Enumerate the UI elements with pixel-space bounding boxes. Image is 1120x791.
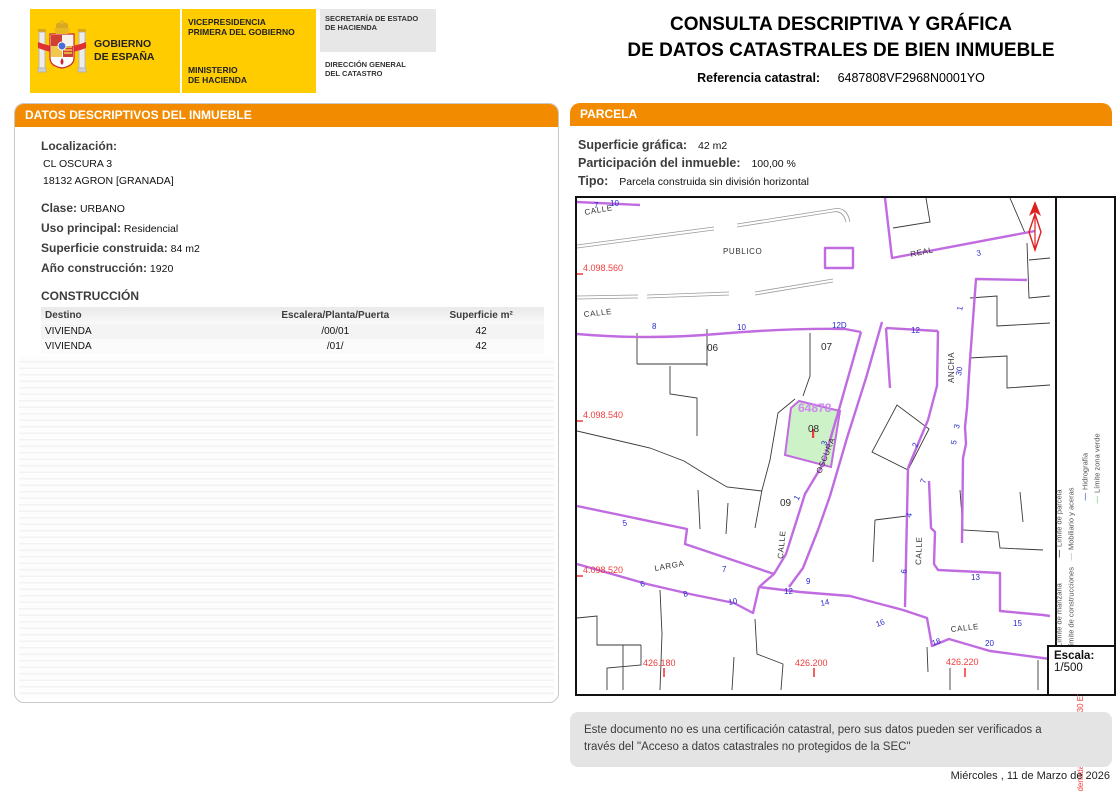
table-row: VIVIENDA/01/42 (41, 339, 544, 354)
disclaimer-box: Este documento no es una certificación c… (570, 712, 1112, 767)
field-label: Clase: (41, 201, 77, 215)
north-arrow-icon (1029, 201, 1041, 250)
legend-entry: —Límite zona verde (1094, 433, 1102, 503)
document-page: GOBIERNO DE ESPAÑA VICEPRESIDENCIA PRIME… (0, 0, 1120, 791)
house-label: 3 (976, 248, 982, 258)
table-column-header: Superficie m² (418, 307, 544, 324)
parcel-label: 08 (808, 424, 820, 435)
house-label: 8 (652, 322, 657, 331)
field-row: Clase: URBANO (41, 201, 544, 215)
logo-ministry-block: VICEPRESIDENCIA PRIMERA DEL GOBIERNO MIN… (182, 9, 316, 93)
legend-sample-icon: — (1081, 493, 1090, 501)
house-label: 1 (955, 305, 965, 311)
house-label: 12 (911, 326, 920, 335)
field-label: Uso principal: (41, 221, 121, 235)
house-label: 10 (728, 596, 739, 607)
field-row: Superficie gráfica: 42 m2 (578, 138, 1112, 152)
street-label: PUBLICO (723, 247, 762, 256)
address-line-1: CL OSCURA 3 (43, 158, 544, 170)
property-data-header: DATOS DESCRIPTIVOS DEL INMUEBLE (15, 104, 558, 127)
table-column-header: Destino (41, 307, 252, 324)
construction-table: DestinoEscalera/Planta/PuertaSuperficie … (41, 307, 544, 354)
logo-sub-block: SECRETARÍA DE ESTADO DE HACIENDA DIRECCI… (320, 9, 436, 93)
address-line-2: 18132 AGRON [GRANADA] (43, 175, 544, 187)
secretaria-label: SECRETARÍA DE ESTADO DE HACIENDA (320, 9, 436, 52)
cadastral-reference-label: Referencia catastral: (697, 71, 820, 85)
house-label: 12 (784, 587, 793, 596)
house-label: 3 (952, 423, 962, 429)
coord-label: 4.098.560 (583, 263, 623, 273)
house-label: 9 (806, 577, 811, 586)
house-label: 18 (931, 636, 943, 648)
parcel-header: PARCELA (570, 103, 1112, 126)
house-label: 14 (820, 597, 831, 608)
document-title-block: CONSULTA DESCRIPTIVA Y GRÁFICA DE DATOS … (570, 12, 1112, 85)
construction-title: CONSTRUCCIÓN (41, 289, 544, 303)
disclaimer-line-2: través del "Acceso a datos catastrales n… (584, 739, 1098, 756)
cadastral-map: CALLEPUBLICOCALLEREALANCHAOSCURALARGACAL… (575, 196, 1116, 696)
field-value: URBANO (77, 203, 125, 215)
scale-label: Escala: (1054, 650, 1114, 662)
ministerio-label: MINISTERIO DE HACIENDA (188, 65, 310, 85)
house-label: 13 (971, 573, 980, 582)
cadastral-map-svg: CALLEPUBLICOCALLEREALANCHAOSCURALARGACAL… (577, 198, 1114, 694)
table-cell: 42 (418, 339, 544, 354)
gobierno-name: GOBIERNO DE ESPAÑA (94, 38, 154, 64)
property-data-body: Localización: CL OSCURA 3 18132 AGRON [G… (15, 127, 558, 354)
field-label: Superficie construida: (41, 241, 168, 255)
field-value: 84 m2 (168, 243, 200, 255)
legend-entry: —Límite de parcela (1056, 489, 1064, 557)
map-legend: —Límite de parcela—Mobiliario y aceras—H… (1055, 198, 1114, 694)
parcel-fields: Superficie gráfica: 42 m2Participación d… (570, 126, 1112, 198)
street-curb-lines (577, 209, 850, 299)
disclaimer-line-1: Este documento no es una certificación c… (584, 722, 1098, 739)
government-logo: GOBIERNO DE ESPAÑA VICEPRESIDENCIA PRIME… (30, 9, 436, 93)
field-row: Año construcción: 1920 (41, 261, 544, 275)
coord-label: 426.200 (795, 658, 828, 668)
house-label: 7 (722, 565, 727, 574)
document-title: CONSULTA DESCRIPTIVA Y GRÁFICA DE DATOS … (570, 12, 1112, 63)
legend-entry: —Hidrografía (1082, 453, 1090, 501)
street-label: CALLE (914, 536, 924, 565)
spain-coat-of-arms-icon (36, 18, 88, 85)
coord-label: 426.180 (643, 658, 676, 668)
parcel-label: 09 (780, 498, 792, 509)
coord-label: 4.098.540 (583, 410, 623, 420)
field-value: 100,00 % (749, 158, 796, 170)
house-label: 6 (899, 568, 909, 574)
field-value: Residencial (121, 223, 178, 235)
cadastral-reference-value: 6487808VF2968N0001YO (838, 71, 985, 85)
coord-label: 4.098.520 (583, 565, 623, 575)
house-label: 1 (792, 493, 802, 502)
logo-gobierno-block: GOBIERNO DE ESPAÑA (30, 9, 180, 93)
localizacion-label: Localización: (41, 139, 117, 153)
table-column-header: Escalera/Planta/Puerta (252, 307, 418, 324)
scale-value: 1/500 (1054, 662, 1114, 674)
table-row: VIVIENDA/00/0142 (41, 324, 544, 339)
field-row: Tipo: Parcela construida sin división ho… (578, 174, 1112, 188)
house-label: 7 (594, 201, 599, 210)
field-value: Parcela construida sin división horizont… (616, 176, 809, 188)
street-label: CALLE (584, 203, 613, 217)
street-label: REAL (910, 245, 935, 259)
house-label: 20 (985, 639, 994, 648)
table-cell: 42 (418, 324, 544, 339)
house-label: 15 (1013, 619, 1022, 628)
table-cell: /01/ (252, 339, 418, 354)
field-value: 1920 (147, 263, 173, 275)
table-cell: VIVIENDA (41, 339, 252, 354)
field-label: Participación del inmueble: (578, 156, 741, 170)
parcel-label: 07 (821, 342, 833, 353)
table-cell: VIVIENDA (41, 324, 252, 339)
empty-rows-stripes (19, 356, 554, 698)
field-label: Tipo: (578, 174, 608, 188)
document-date: Miércoles , 11 de Marzo de 2026 (951, 770, 1110, 782)
house-label: 5 (949, 439, 959, 445)
field-row: Uso principal: Residencial (41, 221, 544, 235)
direccion-general-label: DIRECCIÓN GENERAL DEL CATASTRO (320, 52, 436, 93)
house-label: 4 (904, 511, 914, 518)
field-label: Superficie gráfica: (578, 138, 687, 152)
field-row: Superficie construida: 84 m2 (41, 241, 544, 255)
cadastral-reference: Referencia catastral: 6487808VF2968N0001… (570, 71, 1112, 85)
house-label: 7 (918, 477, 928, 485)
street-label: CALLE (950, 622, 979, 634)
vicepresidencia-label: VICEPRESIDENCIA PRIMERA DEL GOBIERNO (188, 17, 310, 37)
manzana-label: 64878 (798, 401, 832, 415)
parcel-label: 06 (707, 343, 719, 354)
house-label: 5 (622, 518, 628, 528)
scale-box: Escala: 1/500 (1047, 645, 1114, 694)
legend-sample-icon: — (1067, 553, 1076, 561)
street-label: CALLE (583, 307, 612, 319)
house-label: 10 (737, 323, 746, 332)
house-label: 12D (832, 321, 847, 330)
legend-entry: —Mobiliario y aceras (1068, 487, 1076, 560)
localizacion-block: Localización: CL OSCURA 3 18132 AGRON [G… (41, 139, 544, 187)
house-label: 30 (954, 365, 965, 376)
field-row: Participación del inmueble: 100,00 % (578, 156, 1112, 170)
legend-sample-icon: — (1055, 550, 1064, 558)
property-fields: Clase: URBANOUso principal: ResidencialS… (41, 201, 544, 275)
street-label: LARGA (654, 559, 685, 573)
parcel-panel: PARCELA Superficie gráfica: 42 m2Partici… (570, 103, 1112, 198)
property-data-panel: DATOS DESCRIPTIVOS DEL INMUEBLE Localiza… (14, 103, 559, 703)
legend-sample-icon: — (1093, 496, 1102, 504)
table-cell: /00/01 (252, 324, 418, 339)
field-value: 42 m2 (695, 140, 727, 152)
house-label: 10 (610, 199, 619, 208)
field-label: Año construcción: (41, 261, 147, 275)
coord-label: 426.220 (946, 657, 979, 667)
house-label: 16 (875, 617, 887, 629)
